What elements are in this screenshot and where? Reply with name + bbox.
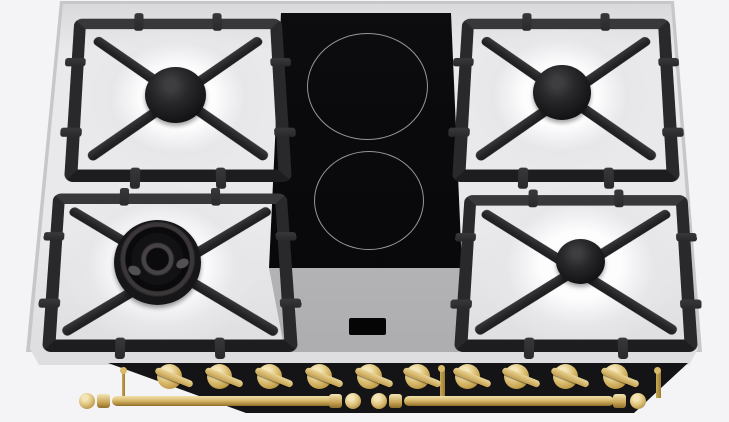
- rail-bar: [404, 396, 614, 406]
- control-knob[interactable]: [304, 362, 344, 396]
- control-knob[interactable]: [154, 362, 194, 396]
- towel-rail: [0, 0, 729, 422]
- rail-bracket: [122, 372, 125, 398]
- control-knob[interactable]: [254, 362, 294, 396]
- rail-finial: [79, 393, 95, 409]
- cooktop-scene: [0, 0, 729, 422]
- control-knob[interactable]: [600, 362, 640, 396]
- rail-collar: [389, 394, 402, 408]
- control-knob[interactable]: [402, 362, 442, 396]
- rail-collar: [97, 394, 110, 408]
- control-knob[interactable]: [204, 362, 244, 396]
- rail-bar: [112, 396, 334, 406]
- rail-collar: [329, 394, 342, 408]
- control-knob[interactable]: [501, 362, 541, 396]
- control-knob[interactable]: [354, 362, 394, 396]
- control-knob[interactable]: [452, 362, 492, 396]
- control-knob[interactable]: [550, 362, 590, 396]
- rail-collar: [613, 394, 626, 408]
- rail-bracket: [656, 372, 661, 398]
